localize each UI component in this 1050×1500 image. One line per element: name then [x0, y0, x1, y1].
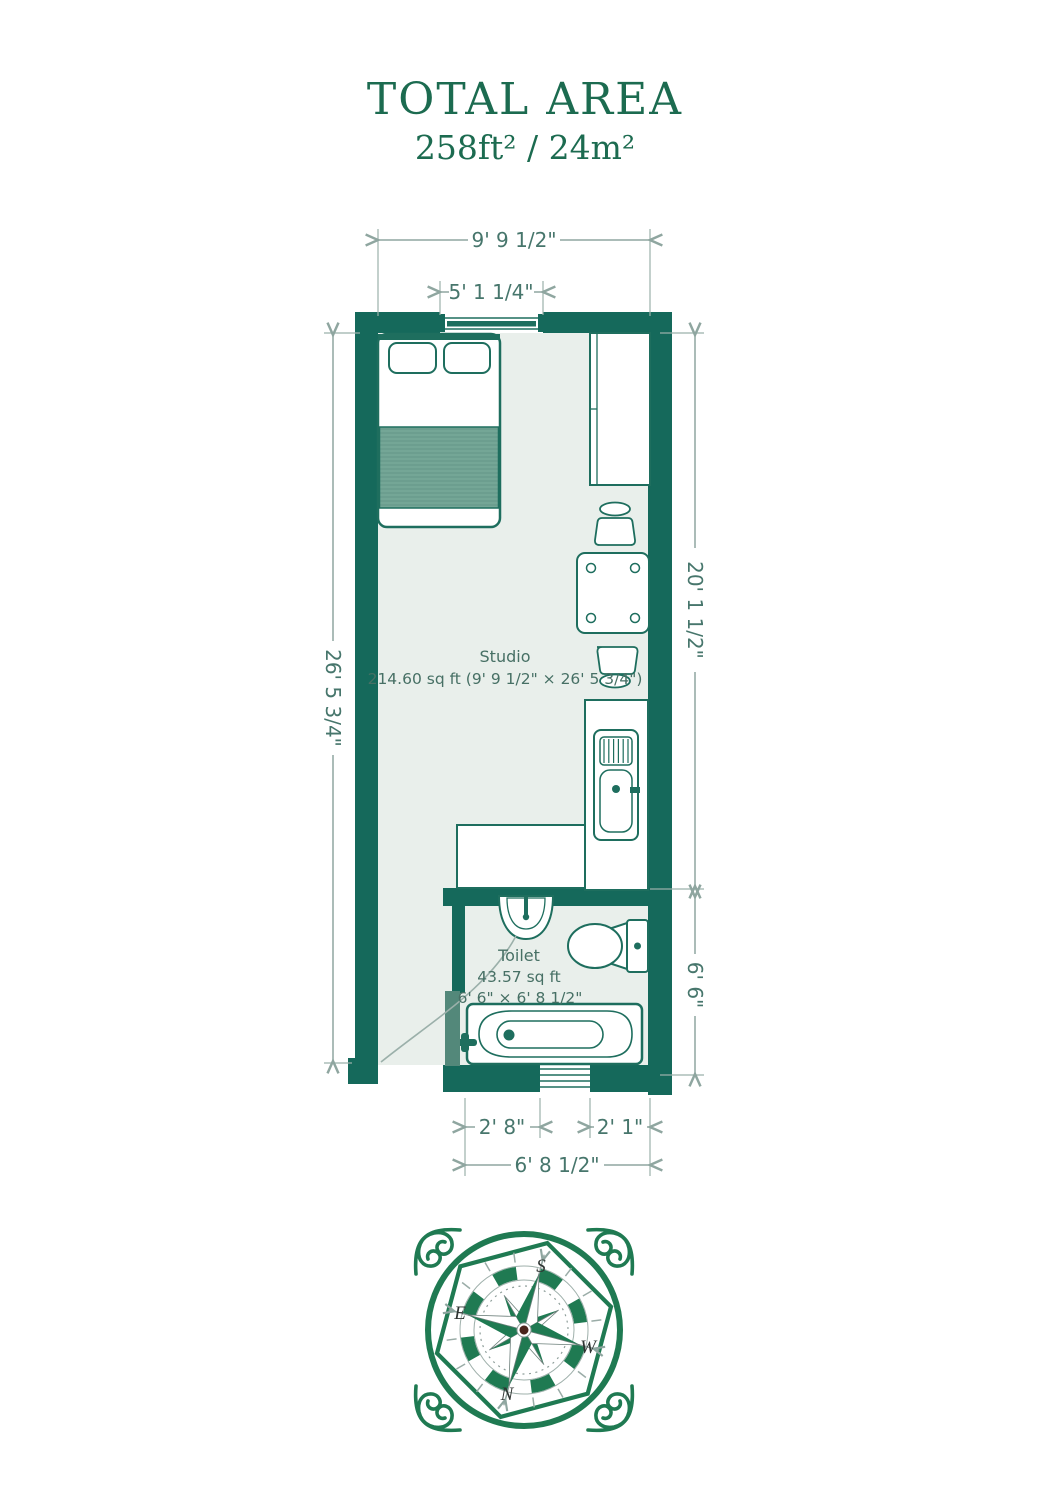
dim-label-right-lower: 6' 6" — [683, 962, 707, 1009]
bed-headboard — [378, 334, 500, 340]
dim-top-inner: 5' 1 1/4" — [440, 280, 543, 304]
toilet-area: 43.57 sq ft — [477, 968, 560, 986]
floor-plan-page: TOTAL AREA 258ft² / 24m² — [0, 0, 1050, 1500]
dim-label-top-outer: 9' 9 1/2" — [471, 228, 556, 252]
table — [577, 553, 649, 633]
compass-north-label: N — [500, 1384, 515, 1405]
dim-right-upper: 20' 1 1/2" — [683, 335, 707, 886]
dim-bottom-left: 2' 8" — [465, 1115, 540, 1139]
wall-right — [648, 312, 672, 1095]
dim-label-top-inner: 5' 1 1/4" — [448, 280, 533, 304]
studio-label: Studio — [480, 647, 531, 666]
toilet-label: Toilet — [497, 946, 540, 965]
wall-left-foot — [348, 1058, 378, 1084]
kitchen-sink — [594, 730, 640, 840]
dim-label-right-upper: 20' 1 1/2" — [683, 561, 707, 659]
sink-faucet — [612, 785, 620, 793]
window-bottom — [540, 1065, 590, 1092]
dim-label-bottom-left: 2' 8" — [479, 1115, 526, 1139]
bathtub-drain — [504, 1030, 515, 1041]
dim-left: 26' 5 3/4" — [321, 335, 345, 1061]
floor-plan-drawing: 9' 9 1/2" 5' 1 1/4" 26' 5 3/4" 20' 1 1/2… — [0, 0, 1050, 1500]
compass-east-label: E — [453, 1303, 466, 1324]
dim-bottom-total: 6' 8 1/2" — [465, 1153, 650, 1177]
wc-toilet — [568, 920, 648, 972]
dim-label-bottom-right: 2' 1" — [597, 1115, 644, 1139]
dim-top-outer: 9' 9 1/2" — [378, 228, 650, 252]
dim-right-lower: 6' 6" — [683, 897, 707, 1074]
toilet-size: 6' 6" × 6' 8 1/2" — [458, 989, 583, 1007]
studio-details: 214.60 sq ft (9' 9 1/2" × 26' 5 3/4") — [368, 670, 643, 688]
wall-toilet-left — [452, 888, 465, 993]
bed — [378, 334, 500, 527]
wall-top-right — [543, 312, 648, 333]
wall-bottom-left — [443, 1065, 540, 1092]
compass-south-label: S — [536, 1256, 546, 1277]
compass-rose: S E W N — [389, 1195, 659, 1465]
bed-blanket — [380, 427, 499, 508]
compass-west-label: W — [580, 1337, 598, 1358]
wardrobe — [590, 333, 650, 485]
wall-bottom-right — [590, 1065, 672, 1092]
pillow-left — [389, 343, 436, 373]
chair-top — [595, 503, 635, 546]
dim-label-left: 26' 5 3/4" — [321, 649, 345, 747]
dim-bottom-right: 2' 1" — [590, 1115, 650, 1139]
dim-label-bottom-total: 6' 8 1/2" — [514, 1153, 599, 1177]
bathtub — [453, 1004, 642, 1064]
window-top — [436, 314, 547, 332]
pillow-right — [444, 343, 490, 373]
